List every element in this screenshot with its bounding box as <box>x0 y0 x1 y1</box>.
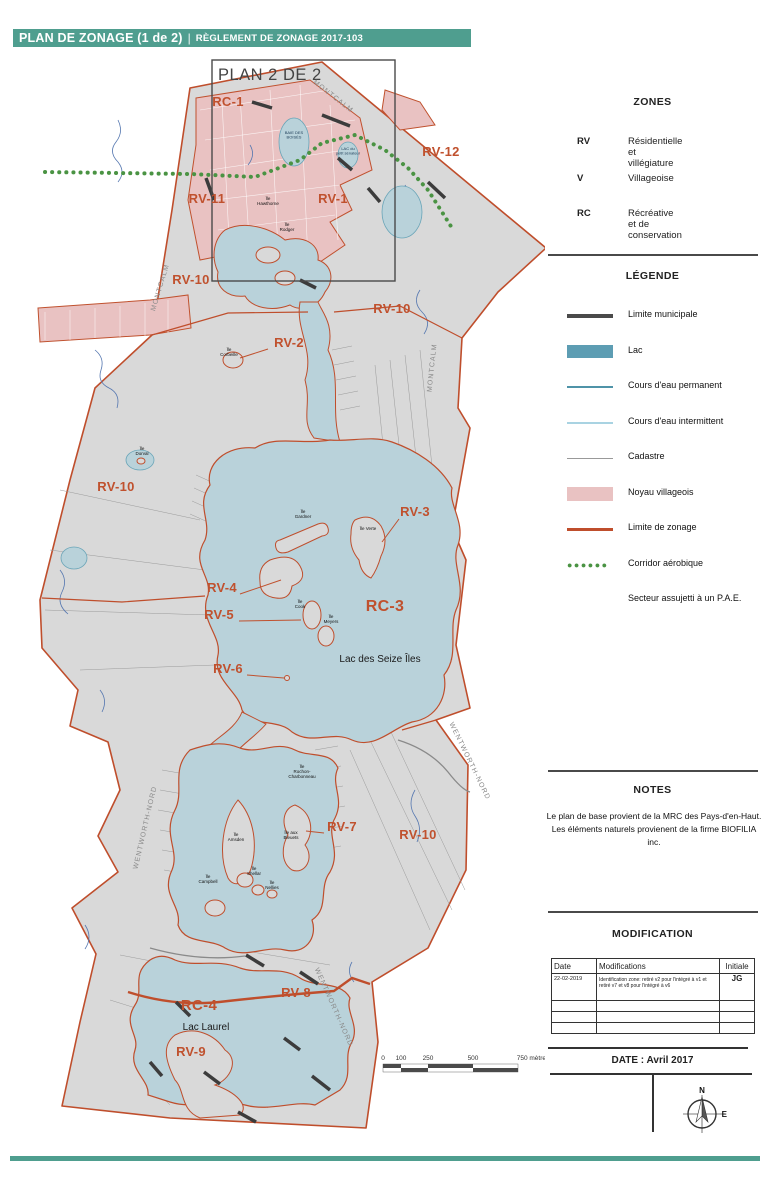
zone-code: RV <box>577 136 590 147</box>
scale-tick-label: 250 <box>423 1055 434 1062</box>
zone-type-label: Villageoise <box>628 173 674 184</box>
legend-item: Limite municipale <box>545 307 768 327</box>
noyau-villageois-symbol <box>567 487 613 501</box>
zone-label-rv-10: RV-10 <box>97 479 134 494</box>
notes-title: NOTES <box>545 784 760 796</box>
legend-item-label: Secteur assujetti à un P.A.E. <box>628 593 741 603</box>
footer-accent-bar <box>10 1156 760 1161</box>
zone-label-rv-9: RV-9 <box>176 1044 206 1059</box>
divider-2 <box>548 770 758 772</box>
legend-item-label: Lac <box>628 345 643 355</box>
limite-de-zonage-symbol <box>567 528 613 531</box>
modification-column-header: Date <box>552 959 597 974</box>
date-label: DATE : Avril 2017 <box>545 1055 760 1066</box>
cadastre-symbol <box>567 458 613 459</box>
scale-end-label: 750 mètres <box>517 1055 545 1062</box>
compass-rose: N E <box>676 1086 728 1138</box>
legend-item: Limite de zonage <box>545 520 768 540</box>
legend-item: ●●●●●●Corridor aérobique <box>545 556 768 576</box>
zone-label-rv-5: RV-5 <box>204 607 234 622</box>
notes-line: Le plan de base provient de la MRC des P… <box>545 810 763 823</box>
none-symbol <box>567 593 613 607</box>
zone-label-rv-2: RV-2 <box>274 335 304 350</box>
zone-label-rc-1: RC-1 <box>212 94 244 109</box>
zone-label-rv-10: RV-10 <box>172 272 209 287</box>
legend-item-label: Limite municipale <box>628 309 698 319</box>
divider-3 <box>548 911 758 913</box>
scale-tick-label: 100 <box>396 1055 407 1062</box>
modification-cell <box>552 1012 597 1023</box>
cours-eau-permanent-symbol <box>567 386 613 388</box>
scale-tick-label: 0 <box>381 1055 385 1062</box>
cours-eau-intermittent-symbol <box>567 422 613 424</box>
modification-cell <box>720 1001 755 1012</box>
modification-cell <box>597 1012 720 1023</box>
zoning-map: PLAN 2 DE 2RC-1RV-12RV-11RV-1RV-10RV-10R… <box>0 50 545 1140</box>
legend-title: LÉGENDE <box>545 270 760 282</box>
corridor-aerobique-symbol: ●●●●●● <box>567 558 613 572</box>
date-box-vline <box>652 1073 654 1132</box>
legend-item: Lac <box>545 343 768 363</box>
inset-label: PLAN 2 DE 2 <box>218 66 322 84</box>
legend-item-label: Cours d'eau intermittent <box>628 416 723 426</box>
zone-label-rv-12: RV-12 <box>422 144 459 159</box>
modification-cell <box>597 1023 720 1034</box>
scale-tick-label: 500 <box>468 1055 479 1062</box>
legend-item: Cours d'eau permanent <box>545 378 768 398</box>
legend-item: Cours d'eau intermittent <box>545 414 768 434</box>
modification-cell: 22-02-2019 <box>552 974 597 1001</box>
zone-type-label: Résidentielle et villégiature <box>628 136 682 169</box>
island-label: Île auxBleuets <box>283 829 299 840</box>
zone-label-rv-7: RV-7 <box>327 819 357 834</box>
modification-table-bottomline <box>548 1047 748 1049</box>
zone-code: V <box>577 173 583 184</box>
zone-label-rc-3: RC-3 <box>366 598 405 615</box>
legend-item-label: Cadastre <box>628 451 665 461</box>
zone-label-rc-4: RC-4 <box>181 997 218 1014</box>
page-title: PLAN DE ZONAGE (1 de 2) <box>19 31 183 45</box>
legend-item-label: Corridor aérobique <box>628 558 703 568</box>
lake-name-label: Lac Laurel <box>183 1022 230 1033</box>
zone-label-rv-4: RV-4 <box>207 580 237 595</box>
date-box-hline <box>550 1073 752 1075</box>
modification-cell: JG <box>720 974 755 1001</box>
modification-cell <box>720 1023 755 1034</box>
lake-name-label: Lac des Seize Îles <box>339 652 420 665</box>
scale-bar <box>383 1064 518 1072</box>
page-subtitle: RÈGLEMENT DE ZONAGE 2017-103 <box>196 33 363 44</box>
modification-table: DateModificationsInitiale22-02-2019Ident… <box>551 958 755 1034</box>
compass-north-label: N <box>699 1086 705 1095</box>
legend-item: Cadastre <box>545 449 768 469</box>
zone-label-rv-3: RV-3 <box>400 504 430 519</box>
modification-column-header: Initiale <box>720 959 755 974</box>
legend-item-label: Cours d'eau permanent <box>628 380 722 390</box>
title-bar: PLAN DE ZONAGE (1 de 2) | RÈGLEMENT DE Z… <box>13 29 471 47</box>
legend-item-label: Noyau villageois <box>628 487 694 497</box>
modification-cell: Identification zone: retiré v2 pour l'in… <box>597 974 720 1001</box>
lac-symbol <box>567 345 613 358</box>
zone-label-rv-1: RV-1 <box>318 191 348 206</box>
modification-cell <box>720 1012 755 1023</box>
limite-municipale-symbol <box>567 314 613 318</box>
legend-item: Secteur assujetti à un P.A.E. <box>545 591 768 611</box>
divider-1 <box>548 254 758 256</box>
modification-column-header: Modifications <box>597 959 720 974</box>
zone-label-rv-10: RV-10 <box>399 827 436 842</box>
compass-east-label: E <box>722 1110 728 1119</box>
legend-item: Noyau villageois <box>545 485 768 505</box>
zone-type-label: Récréative et de conservation <box>628 208 682 241</box>
notes-line: Les éléments naturels provienent de la f… <box>545 823 763 849</box>
modification-title: MODIFICATION <box>545 928 760 940</box>
zoning-plan-page: PLAN DE ZONAGE (1 de 2) | RÈGLEMENT DE Z… <box>0 0 768 1187</box>
zone-label-rv-6: RV-6 <box>213 661 243 676</box>
title-separator: | <box>188 31 191 45</box>
modification-cell <box>552 1023 597 1034</box>
zones-title: ZONES <box>545 96 760 108</box>
zone-label-rv-10: RV-10 <box>373 301 410 316</box>
modification-cell <box>597 1001 720 1012</box>
small-lake-label: BAIE DESBOISÉS <box>285 130 304 140</box>
notes-text: Le plan de base provient de la MRC des P… <box>545 810 763 849</box>
zone-label-rv-11: RV-11 <box>189 191 226 206</box>
legend-item-label: Limite de zonage <box>628 522 697 532</box>
island-label: Île Verte <box>359 525 377 531</box>
zone-code: RC <box>577 208 591 219</box>
modification-cell <box>552 1001 597 1012</box>
zone-label-rv-8: RV-8 <box>281 985 311 1000</box>
